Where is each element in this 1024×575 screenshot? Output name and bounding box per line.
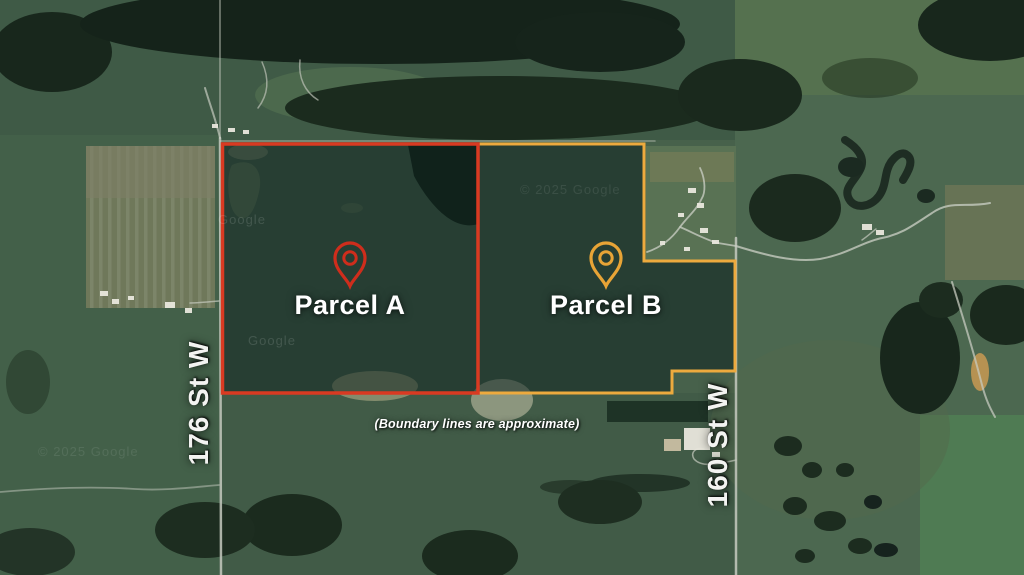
parcel-b-label: Parcel B (550, 290, 662, 321)
map-attribution-watermark: © 2025 Google (520, 182, 621, 197)
parcel-a-label: Parcel A (294, 290, 405, 321)
map-canvas: Google © 2025 Google Google © 2025 Googl… (0, 0, 1024, 575)
road-label-160-st-w: 160 St W (702, 383, 734, 508)
road-label-176-st-w: 176 St W (183, 341, 215, 466)
parcel-a-boundary (223, 144, 479, 393)
map-attribution-watermark: Google (218, 212, 266, 227)
map-attribution-watermark: Google (248, 333, 296, 348)
map-attribution-watermark: © 2025 Google (38, 444, 139, 459)
boundary-disclaimer: (Boundary lines are approximate) (374, 417, 579, 431)
satellite-imagery (0, 0, 1024, 575)
